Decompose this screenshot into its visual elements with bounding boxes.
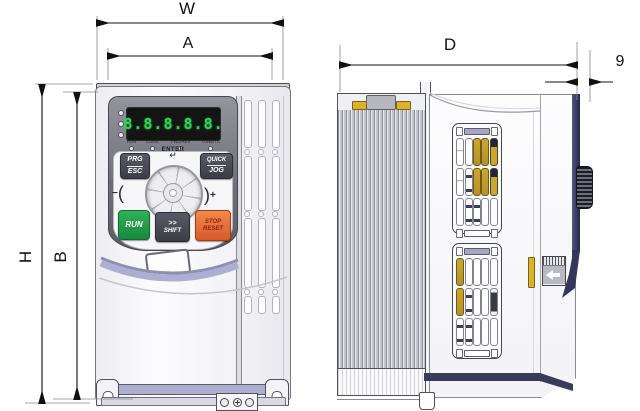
run-button: RUN [118,210,150,240]
dim-label-mount-height: B [52,242,72,272]
heatsink-baseline [337,399,431,400]
vent-hole-icon [272,211,278,217]
vent-slot [456,168,464,196]
vent-slot [490,288,498,316]
screw-icon [245,398,254,407]
rj45-port [542,256,566,286]
button-label: PRG [127,156,142,166]
plus-sign: + [210,190,216,201]
grille-corner-slot [491,229,498,238]
vent-slot-gold [481,138,489,166]
vent-slot [481,288,489,316]
grille-slot-row [456,198,498,226]
button-label: >> [168,220,176,228]
vent-slot [272,100,280,148]
vent-slot [465,318,473,346]
vent-slot [272,218,280,288]
nameplate-window [145,248,192,278]
vent-hole-icon [258,211,264,217]
button-label: SHIFT [164,228,181,235]
shift-button: >> SHIFT [155,212,190,242]
button-label: QUICK [207,157,226,166]
side-mounting-foot [419,392,435,410]
left-arrow-icon [553,273,560,277]
rj45-opening [543,266,565,284]
ground-terminal-plate [216,393,258,411]
vent-hole-icon [258,289,264,295]
heatsink-base [337,368,426,396]
screw-icon [396,101,411,110]
vent-slot [465,258,473,286]
grille-bottom-caps [456,348,498,358]
vent-slot-gold [490,138,498,166]
vent-slot [456,318,464,346]
vent-slot [481,258,489,286]
vent-slot [473,288,481,316]
navigation-wheel-center [169,189,177,197]
vent-slot [272,296,280,314]
prg-esc-button: PRG ESC [120,153,150,179]
vent-slot-gold [456,288,464,316]
vent-slot [244,100,252,148]
gold-terminal-bar [528,257,535,288]
vent-slot [456,138,464,166]
vent-slot [465,198,473,226]
vent-slot [244,218,252,288]
screw-icon [352,101,367,110]
vent-slot [244,296,252,314]
vent-hole-icon [244,289,250,295]
potentiometer-knob [576,166,593,209]
inverter-dimension-drawing: 8.8.8.8.8. RUN LO/RE FWD/REV TUNE/TC PRG [0,0,640,411]
vent-slot [258,156,266,211]
grille-corner-slot [491,247,498,256]
indicator-run: RUN [126,139,137,151]
vent-slot [490,258,498,286]
vent-hole-icon [244,149,250,155]
side-vent-grille-upper [452,123,502,234]
vent-slot [456,198,464,226]
grille-slot-row [456,288,498,316]
vent-slot [473,318,481,346]
vent-slot [465,138,473,166]
quick-jog-button: QUICK JOG [200,153,233,179]
indicator-label: TUNE/TC [202,139,220,144]
vent-slot [473,258,481,286]
vent-slot-gold [481,168,489,196]
vent-slot [473,198,481,226]
vent-slot-gold [490,168,498,196]
dial-minus-label: − ( [112,178,124,208]
vent-slot [481,198,489,226]
vent-slot [465,288,473,316]
grille-top-bar [464,128,490,135]
cover-seam-line [533,112,534,374]
display-value: 8.8.8.8.8. [123,115,223,133]
front-face-line [540,94,541,382]
vent-slot [465,168,473,196]
side-vent-grille-lower [452,243,502,359]
vent-slot [258,218,266,288]
grille-corner-slot [491,127,498,136]
rj45-pins-icon [543,257,565,266]
vent-hole-icon [244,211,250,217]
vent-slot [258,296,266,314]
grille-slot-row [456,168,498,196]
button-label: STOP [205,219,221,226]
bracket-tab [366,95,396,110]
dim-label-depth: D [436,36,464,53]
vent-hole-icon [258,149,264,155]
vent-slot [244,156,252,211]
indicator-label: FWD/REV [170,139,190,144]
grille-top-caps [456,246,498,256]
button-label: ESC [128,168,142,176]
indicator-tune-trip: TUNE/TC [200,139,222,151]
grille-top-bar [464,248,490,255]
vent-slot [481,318,489,346]
vent-slot-gold [473,138,481,166]
dim-label-width: W [172,0,202,17]
grille-corner-slot [456,127,463,136]
vent-slot-gold [456,258,464,286]
enter-return-icon: ↵ [152,153,194,160]
grille-corner-slot [491,349,498,358]
grille-corner-slot [456,247,463,256]
vent-hole-icon [272,289,278,295]
grille-bottom-bar [464,350,490,357]
dim-label-mount-width: A [174,36,202,52]
ground-screw-icon [233,398,242,407]
indicator-label: RUN [127,139,136,144]
dim-label-knob-depth: 9 [608,54,632,70]
vent-slot [258,100,266,148]
vent-hole-icon [272,149,278,155]
grille-slot-row [456,318,498,346]
dim-label-height: H [17,242,37,272]
grille-slot-row [456,138,498,166]
minus-paren: ( [118,183,124,204]
stop-reset-button: STOP RESET [195,210,231,241]
seven-segment-display: 8.8.8.8.8. [126,107,221,141]
left-arrow-icon [546,270,553,280]
screw-icon [220,398,229,407]
grille-top-caps [456,126,498,136]
grille-slot-row [456,258,498,286]
button-label: RUN [125,220,142,229]
vent-slot [272,156,280,211]
button-label: RESET [203,226,223,233]
bottom-rail [101,397,286,406]
grille-bottom-caps [456,228,498,238]
vent-slot [490,198,498,226]
grille-corner-slot [456,349,463,358]
vent-slot-gold [473,168,481,196]
louver-edge-right [283,96,284,390]
vent-slot [490,318,498,346]
grille-bottom-bar [464,230,490,237]
button-label: JOG [209,167,224,175]
grille-corner-slot [456,229,463,238]
heatsink-fins [337,110,426,368]
enter-key-label: ENTER ↵ [152,147,194,160]
dial-plus-label: ) + [204,180,216,210]
indicator-label: LO/RE [146,139,159,144]
